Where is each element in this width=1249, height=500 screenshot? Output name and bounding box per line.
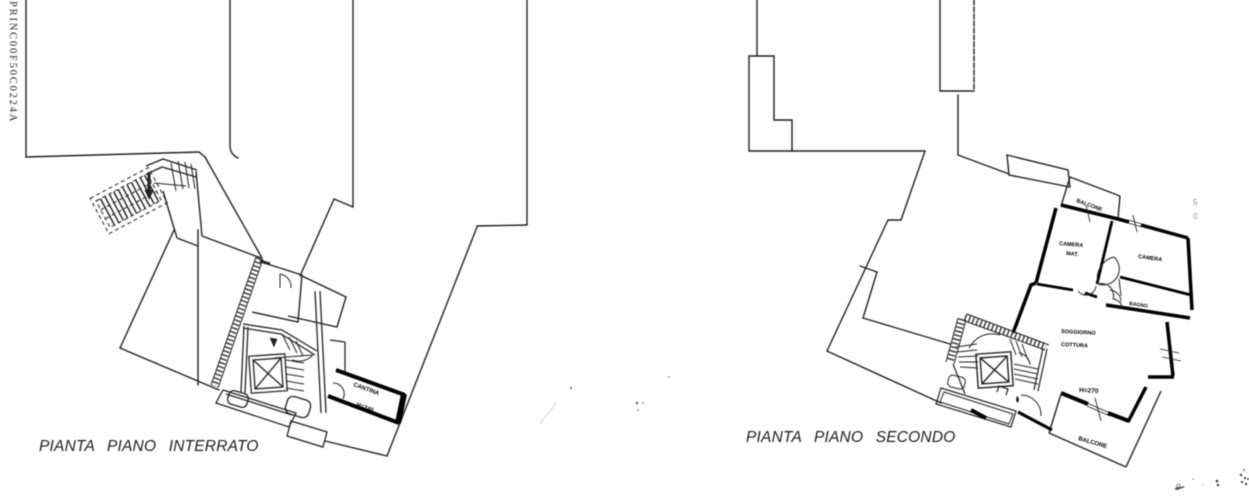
svg-text:MAT.: MAT. (1066, 251, 1079, 258)
svg-text:5: 5 (1193, 198, 1198, 207)
svg-text:SOGGIORNO: SOGGIORNO (1061, 329, 1097, 337)
svg-text:CAMERA: CAMERA (1059, 241, 1084, 249)
svg-text:PIANTA PIANO SECONDO: PIANTA PIANO SECONDO (746, 429, 955, 446)
svg-text:0: 0 (1193, 212, 1198, 221)
svg-text:H=240: H=240 (355, 402, 374, 414)
svg-text:COTTURA: COTTURA (1061, 342, 1088, 349)
svg-text:PIANTA PIANO INTERRATO: PIANTA PIANO INTERRATO (39, 438, 259, 455)
svg-text:H=270: H=270 (1079, 387, 1099, 395)
svg-text:CAMERA: CAMERA (1138, 254, 1163, 263)
svg-text:PRINC00F50C0224A: PRINC00F50C0224A (7, 1, 18, 123)
